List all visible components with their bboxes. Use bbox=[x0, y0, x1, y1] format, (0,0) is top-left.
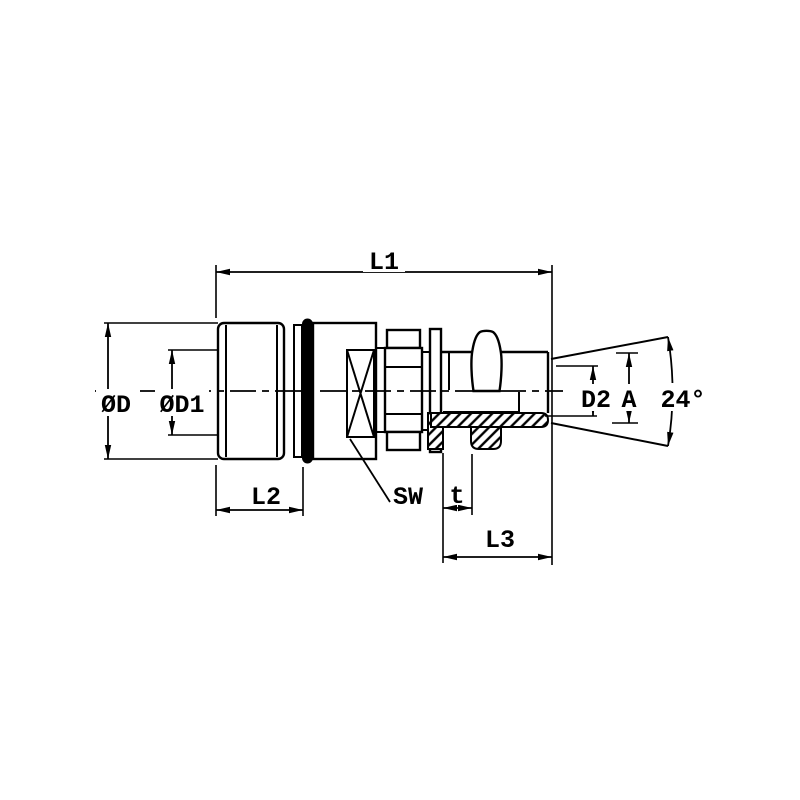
label-d2: D2 bbox=[581, 386, 611, 415]
label-a: A bbox=[621, 386, 636, 415]
technical-drawing-page: L1 ØD ØD1 L2 SW t L3 D2 A 24° bbox=[0, 0, 800, 800]
label-od1: ØD1 bbox=[159, 391, 204, 420]
label-od: ØD bbox=[101, 391, 131, 420]
hex-collar bbox=[385, 330, 422, 450]
coupling-technical-drawing: L1 ØD ØD1 L2 SW t L3 D2 A 24° bbox=[0, 0, 800, 800]
label-t: t bbox=[449, 482, 464, 511]
label-cone-angle: 24° bbox=[660, 386, 705, 415]
label-l2: L2 bbox=[251, 483, 281, 512]
thread-band-hatch bbox=[431, 413, 548, 427]
hex-section-hatch bbox=[471, 427, 501, 449]
label-l3: L3 bbox=[485, 526, 515, 555]
thread-section bbox=[428, 413, 548, 449]
label-l1: L1 bbox=[369, 248, 399, 277]
label-sw: SW bbox=[393, 483, 423, 512]
hex-head bbox=[471, 331, 501, 391]
